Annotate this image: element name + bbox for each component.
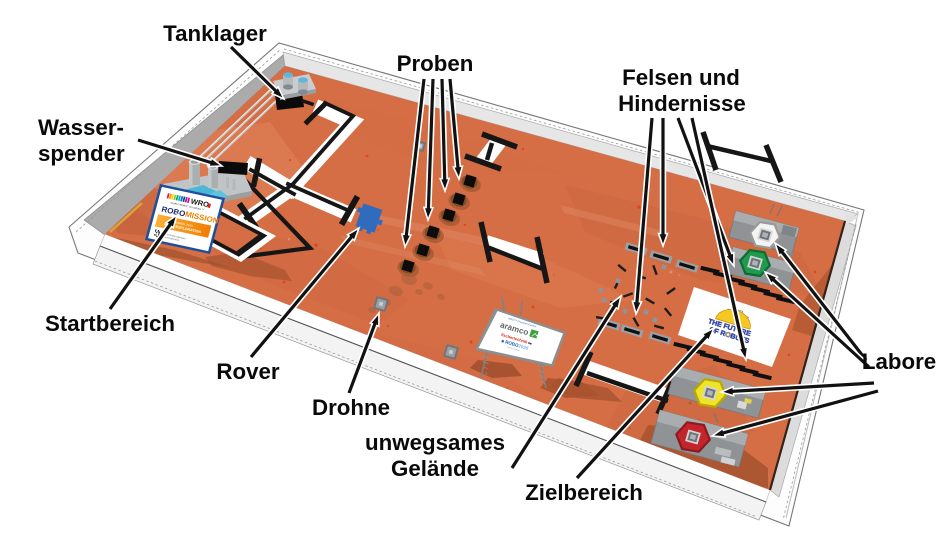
svg-text:Drohne: Drohne: [312, 395, 390, 420]
svg-text:Rover: Rover: [216, 359, 280, 384]
svg-text:Tanklager: Tanklager: [163, 21, 267, 46]
svg-text:unwegsames: unwegsames: [365, 430, 505, 455]
svg-text:Labore: Labore: [862, 349, 936, 374]
svg-text:Proben: Proben: [397, 51, 474, 76]
svg-text:Zielbereich: Zielbereich: [525, 480, 643, 505]
svg-text:spender: spender: [38, 141, 125, 166]
svg-text:Gelände: Gelände: [391, 456, 479, 481]
svg-text:Wasser-: Wasser-: [38, 115, 124, 140]
svg-text:Startbereich: Startbereich: [45, 311, 175, 336]
svg-text:Felsen und: Felsen und: [622, 65, 740, 90]
svg-text:Hindernisse: Hindernisse: [618, 91, 746, 116]
